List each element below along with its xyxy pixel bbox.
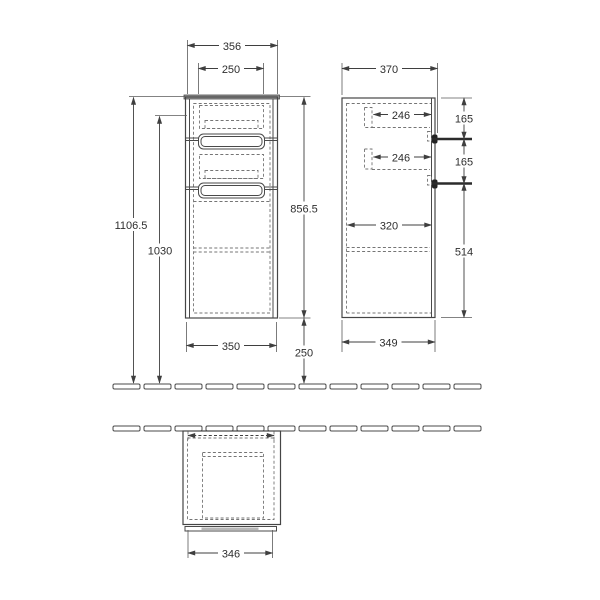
floor-line-upper — [113, 384, 481, 389]
svg-text:320: 320 — [380, 221, 398, 233]
floor-tile — [454, 384, 481, 389]
floor-tile — [268, 384, 295, 389]
dim-front-floor-clearance: 250 — [291, 346, 317, 360]
svg-text:250: 250 — [222, 64, 240, 76]
side-drawer2-dashed — [365, 149, 373, 169]
floor-tile — [268, 426, 295, 431]
floor-tile — [237, 426, 264, 431]
svg-text:349: 349 — [379, 338, 397, 350]
dim-plan-overall-width: 346 — [218, 547, 244, 561]
svg-text:514: 514 — [455, 247, 473, 259]
technical-drawing: 356 250 1106.5 1030 856.5 — [0, 0, 600, 600]
dim-front-bottom-width: 350 — [218, 339, 244, 353]
front-outline — [186, 97, 278, 318]
svg-text:346: 346 — [222, 549, 240, 561]
front-drawer1-handle — [186, 134, 278, 149]
svg-text:246: 246 — [392, 110, 410, 122]
svg-text:356: 356 — [223, 41, 241, 53]
svg-text:856.5: 856.5 — [290, 204, 318, 216]
side-view — [342, 98, 438, 318]
dim-side-shelf-depth: 320 — [376, 219, 402, 233]
front-drawer1-dashed — [200, 106, 264, 129]
floor-tile — [392, 384, 419, 389]
cabinet-dimension-diagram: 356 250 1106.5 1030 856.5 — [0, 0, 600, 600]
side-dimensions: 370 246 246 320 349 — [342, 62, 477, 352]
dim-side-overall-depth: 370 — [376, 62, 402, 76]
side-outline — [342, 98, 435, 318]
svg-text:246: 246 — [392, 153, 410, 165]
svg-text:165: 165 — [455, 157, 473, 169]
front-inner-dashed — [194, 104, 271, 314]
dim-side-bottom-drawer-depth: 246 — [388, 151, 414, 165]
dim-side-bottom-depth: 349 — [376, 336, 402, 350]
floor-tile — [113, 384, 140, 389]
side-drawer1-dashed — [365, 108, 373, 128]
floor-tile — [299, 426, 326, 431]
plan-view: 346 — [183, 431, 281, 561]
floor-tile — [206, 384, 233, 389]
front-dimensions: 356 250 1106.5 1030 856.5 — [109, 39, 323, 383]
floor-tile — [423, 384, 450, 389]
plan-drawer-dashed — [203, 453, 264, 519]
plan-inner-dashed — [188, 438, 275, 520]
floor-tile — [454, 426, 481, 431]
floor-tile — [330, 426, 357, 431]
floor-tile — [144, 426, 171, 431]
front-view — [184, 95, 280, 318]
svg-text:370: 370 — [380, 64, 398, 76]
dim-front-total-height: 1106.5 — [109, 218, 153, 232]
floor-tile — [175, 426, 202, 431]
svg-text:350: 350 — [222, 341, 240, 353]
floor-tile — [113, 426, 140, 431]
floor-tile — [237, 384, 264, 389]
dim-front-overall-width: 356 — [219, 39, 245, 53]
floor-tile — [392, 426, 419, 431]
floor-tile — [206, 426, 233, 431]
svg-text:165: 165 — [455, 114, 473, 126]
plan-outline — [183, 431, 281, 525]
svg-text:1030: 1030 — [148, 246, 172, 258]
floor-tile — [144, 384, 171, 389]
dim-front-upper-height: 1030 — [144, 244, 176, 258]
dim-side-top-handle-spacing: 165 — [451, 112, 477, 126]
floor-tile — [423, 426, 450, 431]
floor-tile — [330, 384, 357, 389]
floor-tile — [361, 426, 388, 431]
floor-tile — [361, 384, 388, 389]
dim-front-drawer-width: 250 — [218, 62, 244, 76]
floor-tile — [299, 384, 326, 389]
dim-side-lower-height: 514 — [451, 245, 477, 259]
front-drawer2-dashed — [200, 155, 264, 179]
svg-text:250: 250 — [295, 348, 313, 360]
front-drawer2-handle — [186, 183, 278, 198]
floor-tile — [175, 384, 202, 389]
dim-front-cabinet-height: 856.5 — [285, 202, 323, 216]
dim-side-top-drawer-depth: 246 — [388, 108, 414, 122]
dim-side-bottom-handle-spacing: 165 — [451, 155, 477, 169]
floor-line-lower — [113, 426, 481, 431]
svg-text:1106.5: 1106.5 — [115, 220, 148, 232]
